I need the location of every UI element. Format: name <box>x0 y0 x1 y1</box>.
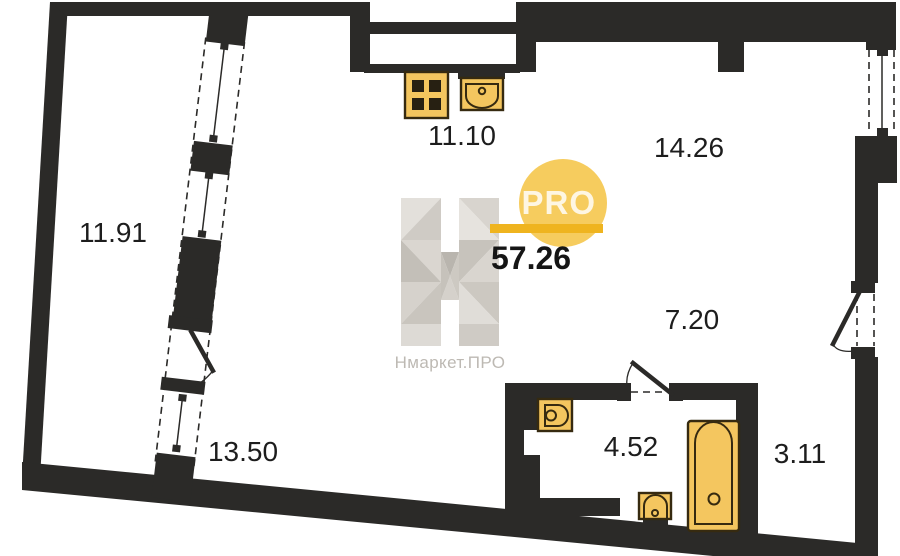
window-cap <box>205 171 214 179</box>
logo-pro-label: PRO <box>521 184 596 221</box>
window-cap <box>877 48 888 56</box>
glazing-pier <box>173 236 221 322</box>
toilet-icon <box>639 493 671 533</box>
window-cap <box>877 128 888 136</box>
kitchen-niche <box>350 2 536 73</box>
wall-segment <box>22 2 68 478</box>
brand-logo: PRO 57.26 Нмаркет.ПРО <box>395 159 607 372</box>
balcony-glazing-band <box>147 3 255 502</box>
niche-column <box>516 2 536 72</box>
window-cap <box>220 42 229 50</box>
floorplan-svg: PRO 57.26 Нмаркет.ПРО 11.91 11.10 14.26 … <box>0 0 900 556</box>
logo-brand-label: Нмаркет.ПРО <box>395 353 506 372</box>
glazing-pier <box>151 453 195 502</box>
area-label-room-lower: 13.50 <box>208 436 278 467</box>
niche-top-wall <box>368 22 518 34</box>
logo-h-mark <box>401 198 499 346</box>
window-cap <box>172 444 181 452</box>
balcony-door-leaf <box>187 332 217 371</box>
wall-segment <box>855 136 897 183</box>
door-jamb <box>617 383 631 401</box>
niche-column <box>350 2 370 72</box>
window-cap <box>198 230 207 238</box>
logo-accent-bar <box>490 224 603 233</box>
area-label-living: 14.26 <box>654 132 724 163</box>
area-label-hallway: 7.20 <box>665 304 720 335</box>
window-cap <box>209 135 218 143</box>
glazing-pier <box>190 141 232 175</box>
window-glass-line <box>176 397 182 451</box>
total-area-label: 57.26 <box>491 240 571 276</box>
area-label-bathroom: 4.52 <box>604 431 659 462</box>
window-glass-line <box>213 46 224 141</box>
door-jamb <box>160 377 205 395</box>
door-jamb <box>851 281 875 293</box>
wall-segment <box>536 2 896 42</box>
floorplan-page: PRO 57.26 Нмаркет.ПРО 11.91 11.10 14.26 … <box>0 0 900 556</box>
bathroom-door <box>627 363 672 394</box>
kitchen-sink-icon <box>458 70 505 110</box>
door-leaf <box>633 363 672 394</box>
stove-icon <box>405 72 448 118</box>
area-label-balcony: 11.91 <box>79 217 147 248</box>
window-cap <box>178 394 187 402</box>
wall-segment <box>855 357 878 556</box>
wall-segment <box>718 42 744 72</box>
wall-segment <box>855 183 878 283</box>
bathtub-icon <box>688 421 739 531</box>
bathroom-sink-icon <box>538 399 572 431</box>
window-glass-line <box>202 175 209 237</box>
wall-ledge <box>534 498 620 516</box>
area-label-closet: 3.11 <box>774 438 826 469</box>
glazing-pier <box>206 4 249 46</box>
entrance-door <box>833 293 874 351</box>
wall-segment <box>50 2 352 16</box>
area-label-kitchen: 11.10 <box>428 120 496 151</box>
door-leaf <box>833 293 859 344</box>
